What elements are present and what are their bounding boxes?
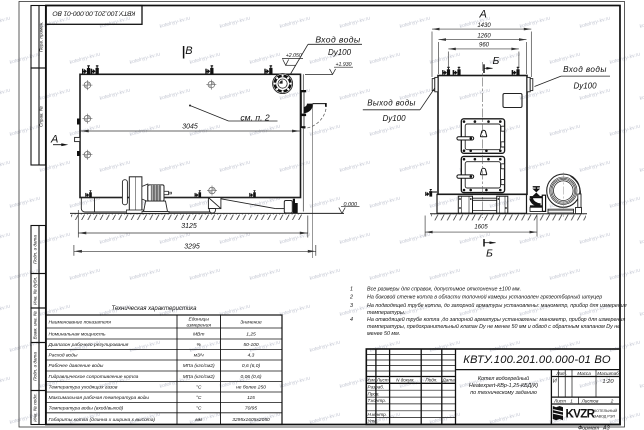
svg-text:Вход воды: Вход воды bbox=[563, 65, 607, 74]
svg-text:Номинальная мощность: Номинальная мощность bbox=[49, 331, 107, 337]
svg-text:Котел водогрейный: Котел водогрейный bbox=[478, 375, 529, 382]
svg-text:измерения: измерения bbox=[186, 323, 211, 328]
svg-text:мм: мм bbox=[195, 418, 202, 423]
svg-text:Вход воды: Вход воды bbox=[315, 34, 361, 44]
svg-text:0,06 (0,6): 0,06 (0,6) bbox=[241, 374, 262, 380]
svg-text:Лит.: Лит. bbox=[555, 371, 567, 376]
svg-text:температуры.: температуры. bbox=[367, 310, 405, 316]
svg-text:МПа (кгс/см2): МПа (кгс/см2) bbox=[183, 374, 215, 380]
svg-text:50-100: 50-100 bbox=[243, 342, 259, 348]
svg-text:%: % bbox=[197, 342, 202, 348]
svg-text:температуры, предохранительный: температуры, предохранительный клапан Dу… bbox=[367, 323, 620, 330]
svg-text:м3/ч: м3/ч bbox=[194, 353, 204, 359]
svg-text:Б: Б bbox=[486, 248, 493, 260]
svg-text:70/95: 70/95 bbox=[245, 406, 258, 412]
svg-text:1: 1 bbox=[570, 398, 573, 403]
svg-text:Формат: Формат bbox=[578, 425, 600, 430]
svg-text:МПа (кгс/см2): МПа (кгс/см2) bbox=[183, 363, 215, 369]
svg-text:см. п. 2: см. п. 2 bbox=[240, 112, 269, 122]
svg-text:Б: Б bbox=[493, 55, 500, 67]
svg-text:1: 1 bbox=[350, 286, 353, 292]
svg-text:1,25: 1,25 bbox=[246, 331, 256, 337]
svg-text:1:20: 1:20 bbox=[602, 379, 614, 385]
svg-text:А: А bbox=[50, 133, 58, 145]
svg-text:Н.контр.: Н.контр. bbox=[368, 412, 387, 417]
svg-text:Масштаб: Масштаб bbox=[597, 371, 619, 376]
svg-text:Dy100: Dy100 bbox=[328, 48, 352, 57]
svg-text:ЗАВОД РЭП: ЗАВОД РЭП bbox=[594, 414, 615, 418]
svg-text:°С: °С bbox=[196, 406, 202, 412]
svg-text:Техническая характеристика: Техническая характеристика bbox=[112, 306, 198, 312]
svg-text:4,3: 4,3 bbox=[248, 353, 255, 359]
svg-text:Наименование показателя: Наименование показателя bbox=[49, 320, 112, 326]
svg-text:4: 4 bbox=[350, 317, 353, 323]
svg-text:КОТЕЛЬНЫЙ: КОТЕЛЬНЫЙ bbox=[594, 409, 617, 413]
svg-text:Справ. №: Справ. № bbox=[39, 106, 44, 127]
svg-text:не более 250: не более 250 bbox=[236, 385, 266, 391]
svg-text:КВТУ.100.201.00.000-01 ВО: КВТУ.100.201.00.000-01 ВО bbox=[463, 354, 611, 366]
svg-text:N докум.: N докум. bbox=[396, 377, 415, 382]
svg-text:Перв. примен.: Перв. примен. bbox=[39, 21, 44, 52]
svg-text:Взам. инв. №: Взам. инв. № bbox=[33, 311, 38, 339]
svg-text:Heatexpert-КВр-1,25-КБД(К): Heatexpert-КВр-1,25-КБД(К) bbox=[469, 383, 538, 389]
svg-text:Диапазон рабочего регулировани: Диапазон рабочего регулирования bbox=[48, 342, 129, 348]
svg-text:2: 2 bbox=[610, 398, 614, 403]
svg-text:Единицы: Единицы bbox=[188, 317, 209, 323]
svg-text:На боковой стенке котла в обла: На боковой стенке котла в области топочн… bbox=[367, 294, 602, 301]
svg-text:3295: 3295 bbox=[184, 244, 200, 251]
svg-text:Габариты котла (длинна х ширин: Габариты котла (длинна х ширина х высота… bbox=[49, 417, 156, 423]
svg-text:3: 3 bbox=[350, 303, 353, 309]
svg-text:Дата: Дата bbox=[442, 377, 456, 382]
svg-text:В: В bbox=[185, 45, 192, 57]
svg-text:Утв.: Утв. bbox=[368, 419, 378, 424]
svg-text:Лист: Лист bbox=[376, 377, 389, 382]
svg-text:Лист: Лист bbox=[553, 398, 566, 403]
svg-text:115: 115 bbox=[247, 395, 255, 401]
svg-text:2: 2 bbox=[349, 295, 353, 301]
svg-text:Значение: Значение bbox=[240, 320, 262, 326]
svg-text:Пров.: Пров. bbox=[368, 391, 380, 396]
svg-text:Подп. и дата: Подп. и дата bbox=[33, 352, 38, 381]
svg-text:Листов: Листов bbox=[581, 398, 599, 403]
svg-text:На отводящей трубе котла ,до з: На отводящей трубе котла ,до запорной ар… bbox=[367, 316, 625, 323]
svg-text:по техническому заданию: по техническому заданию bbox=[470, 390, 537, 396]
svg-text:Подп.: Подп. bbox=[425, 377, 437, 382]
svg-text:3295х1605х2050: 3295х1605х2050 bbox=[232, 417, 270, 423]
svg-text:3125: 3125 bbox=[181, 223, 197, 230]
svg-text:Максимальная рабочая температу: Максимальная рабочая температура воды bbox=[49, 395, 150, 401]
svg-text:На подводящей трубе котла, д: На подводящей трубе котла, до запорной а… bbox=[367, 302, 627, 309]
svg-text:1605: 1605 bbox=[474, 225, 488, 231]
svg-text:0,6 (6,0): 0,6 (6,0) bbox=[242, 363, 261, 369]
svg-text:960: 960 bbox=[479, 43, 490, 49]
svg-text:КВТУ.100.201.00.000-01 ВО: КВТУ.100.201.00.000-01 ВО bbox=[52, 9, 136, 16]
svg-text:МВт: МВт bbox=[193, 331, 204, 337]
svg-text:Все размеры для справок, допус: Все размеры для справок, допустимое откл… bbox=[367, 286, 521, 292]
svg-text:Температура уходящих газов: Температура уходящих газов bbox=[49, 385, 118, 391]
svg-text:Расход воды: Расход воды bbox=[49, 353, 78, 359]
svg-text:Температура воды (вход/выход): Температура воды (вход/выход) bbox=[49, 406, 124, 412]
svg-text:°С: °С bbox=[196, 385, 202, 391]
svg-text:Подп. и дата: Подп. и дата bbox=[33, 235, 38, 264]
svg-text:А: А bbox=[479, 9, 487, 21]
svg-text:1430: 1430 bbox=[477, 23, 491, 29]
svg-text:°С: °С bbox=[196, 395, 202, 401]
svg-text:Dy100: Dy100 bbox=[573, 82, 597, 91]
svg-text:Изм.: Изм. bbox=[366, 377, 376, 382]
svg-text:Инв. № дубл.: Инв. № дубл. bbox=[33, 277, 38, 305]
svg-text:И: И bbox=[553, 379, 557, 385]
svg-text:Масса: Масса bbox=[577, 371, 591, 376]
svg-text:Т.контр.: Т.контр. bbox=[368, 398, 387, 403]
svg-text:Инв. № подл.: Инв. № подл. bbox=[33, 393, 38, 422]
svg-text:Разраб.: Разраб. bbox=[368, 384, 385, 389]
svg-text:Гидравлическое сопротивление к: Гидравлическое сопротивление котла bbox=[49, 374, 139, 380]
svg-text:Dy100: Dy100 bbox=[382, 114, 406, 123]
svg-text:KVZR: KVZR bbox=[566, 408, 596, 421]
svg-text:3045: 3045 bbox=[182, 123, 198, 130]
svg-text:менее 50 мм.: менее 50 мм. bbox=[367, 331, 400, 337]
svg-text:А3: А3 bbox=[602, 425, 610, 430]
svg-text:1260: 1260 bbox=[477, 33, 491, 39]
svg-text:Выход воды: Выход воды bbox=[367, 98, 415, 107]
svg-text:Рабочее давление воды: Рабочее давление воды bbox=[49, 363, 104, 369]
